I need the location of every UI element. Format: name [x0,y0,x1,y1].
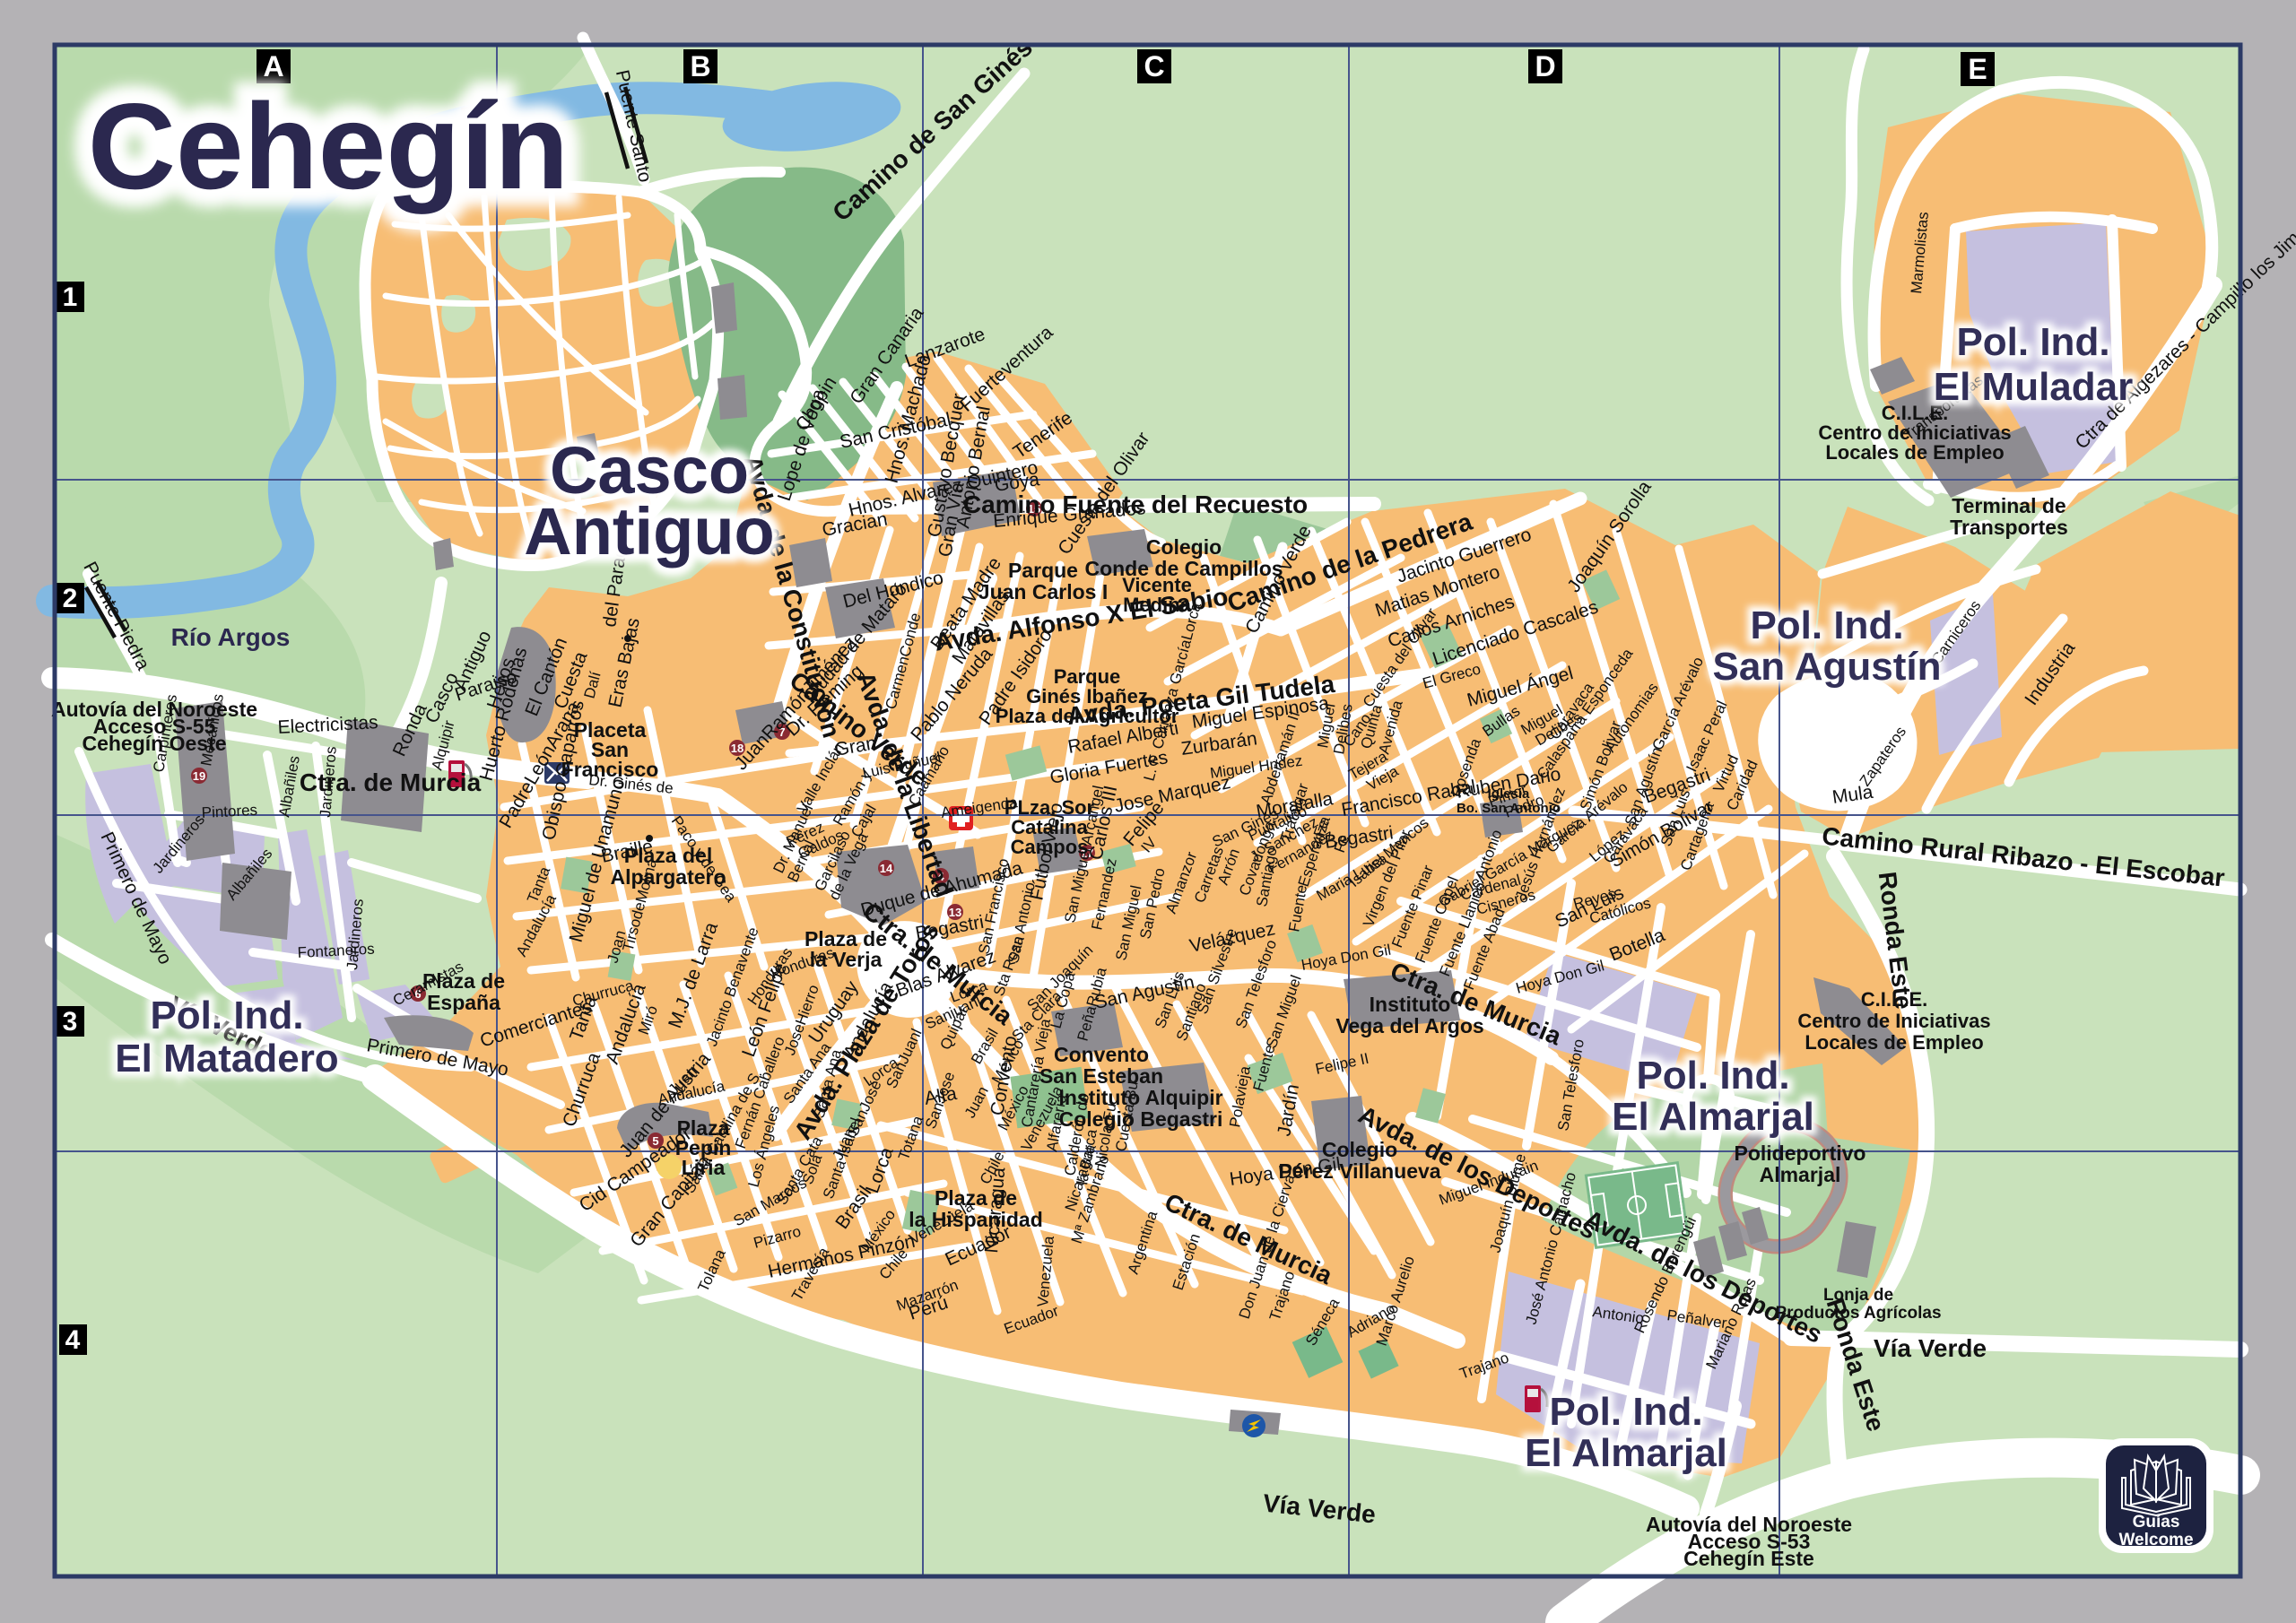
svg-text:Vía Verde: Vía Verde [1874,1334,1987,1362]
svg-text:Pintores: Pintores [201,802,257,821]
svg-text:El Almarjal: El Almarjal [1525,1431,1727,1475]
svg-text:Pol. Ind.: Pol. Ind. [150,994,303,1037]
svg-text:España: España [427,991,500,1014]
svg-text:3: 3 [63,1007,78,1037]
svg-text:Cehegín Este: Cehegín Este [1683,1547,1814,1570]
svg-text:Parque: Parque [1008,559,1078,582]
svg-text:Colegio: Colegio [1146,535,1222,559]
svg-text:Pol. Ind.: Pol. Ind. [1750,603,1903,647]
svg-text:Medina: Medina [1123,594,1192,616]
svg-text:4: 4 [65,1325,81,1355]
svg-text:Pol. Ind.: Pol. Ind. [1549,1390,1702,1434]
svg-text:Guías: Guías [2133,1513,2180,1532]
svg-text:Vega del Argos: Vega del Argos [1335,1014,1483,1037]
svg-text:Instituto: Instituto [1370,993,1451,1016]
svg-text:Pol. Ind.: Pol. Ind. [1636,1054,1789,1098]
svg-text:Río Argos: Río Argos [171,623,291,651]
svg-text:Convento: Convento [1054,1043,1149,1066]
svg-text:Cehegín: Cehegín [88,78,570,214]
svg-text:C: C [1144,50,1164,82]
svg-text:14: 14 [880,862,893,875]
svg-text:Welcome: Welcome [2118,1531,2193,1549]
svg-text:E: E [1968,53,1987,85]
svg-text:2: 2 [63,584,78,613]
svg-text:Terminal de: Terminal de [1952,494,2066,517]
svg-text:Locales de Empleo: Locales de Empleo [1825,441,2004,464]
svg-text:Centro de Iniciativas: Centro de Iniciativas [1797,1010,1990,1032]
svg-text:B: B [690,50,710,82]
svg-text:El Almarjal: El Almarjal [1612,1095,1814,1139]
svg-text:19: 19 [193,769,205,783]
svg-text:Lonja de: Lonja de [1823,1286,1893,1305]
svg-text:Pol. Ind.: Pol. Ind. [1956,320,2109,364]
svg-text:Polideportivo: Polideportivo [1735,1141,1866,1165]
svg-text:Transportes: Transportes [1950,516,2068,539]
svg-text:C.I.L.E.: C.I.L.E. [1861,988,1928,1011]
svg-text:Productos Agrícolas: Productos Agrícolas [1775,1304,1941,1323]
svg-text:D: D [1535,50,1555,82]
svg-text:San Agustín: San Agustín [1712,645,1941,689]
svg-text:Antiguo: Antiguo [524,494,774,568]
svg-text:San Esteban: San Esteban [1039,1064,1163,1088]
svg-text:El Muladar: El Muladar [1934,365,2134,409]
svg-text:El Matadero: El Matadero [115,1037,338,1081]
svg-text:1: 1 [63,282,78,312]
svg-text:Almarjal: Almarjal [1760,1163,1841,1186]
svg-text:Locales de Empleo: Locales de Empleo [1805,1031,1983,1054]
